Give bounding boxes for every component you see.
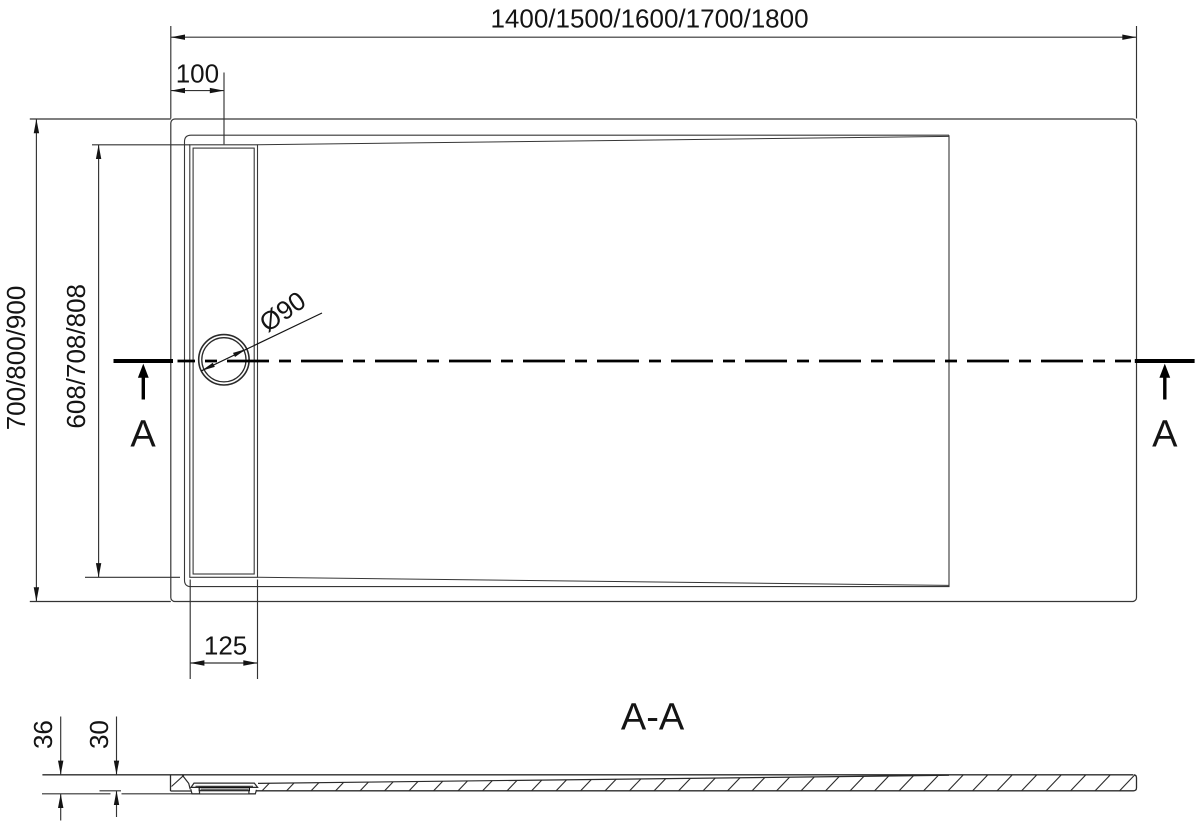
svg-text:608/708/808: 608/708/808	[61, 284, 91, 429]
svg-text:125: 125	[204, 630, 247, 660]
svg-text:1400/1500/1600/1700/1800: 1400/1500/1600/1700/1800	[490, 3, 808, 33]
svg-text:36: 36	[28, 720, 58, 749]
svg-text:30: 30	[84, 720, 114, 749]
svg-text:A-A: A-A	[621, 697, 685, 739]
svg-text:100: 100	[176, 58, 219, 88]
svg-text:A: A	[1152, 414, 1178, 456]
svg-text:A: A	[130, 414, 156, 456]
svg-text:700/800/900: 700/800/900	[1, 286, 31, 431]
